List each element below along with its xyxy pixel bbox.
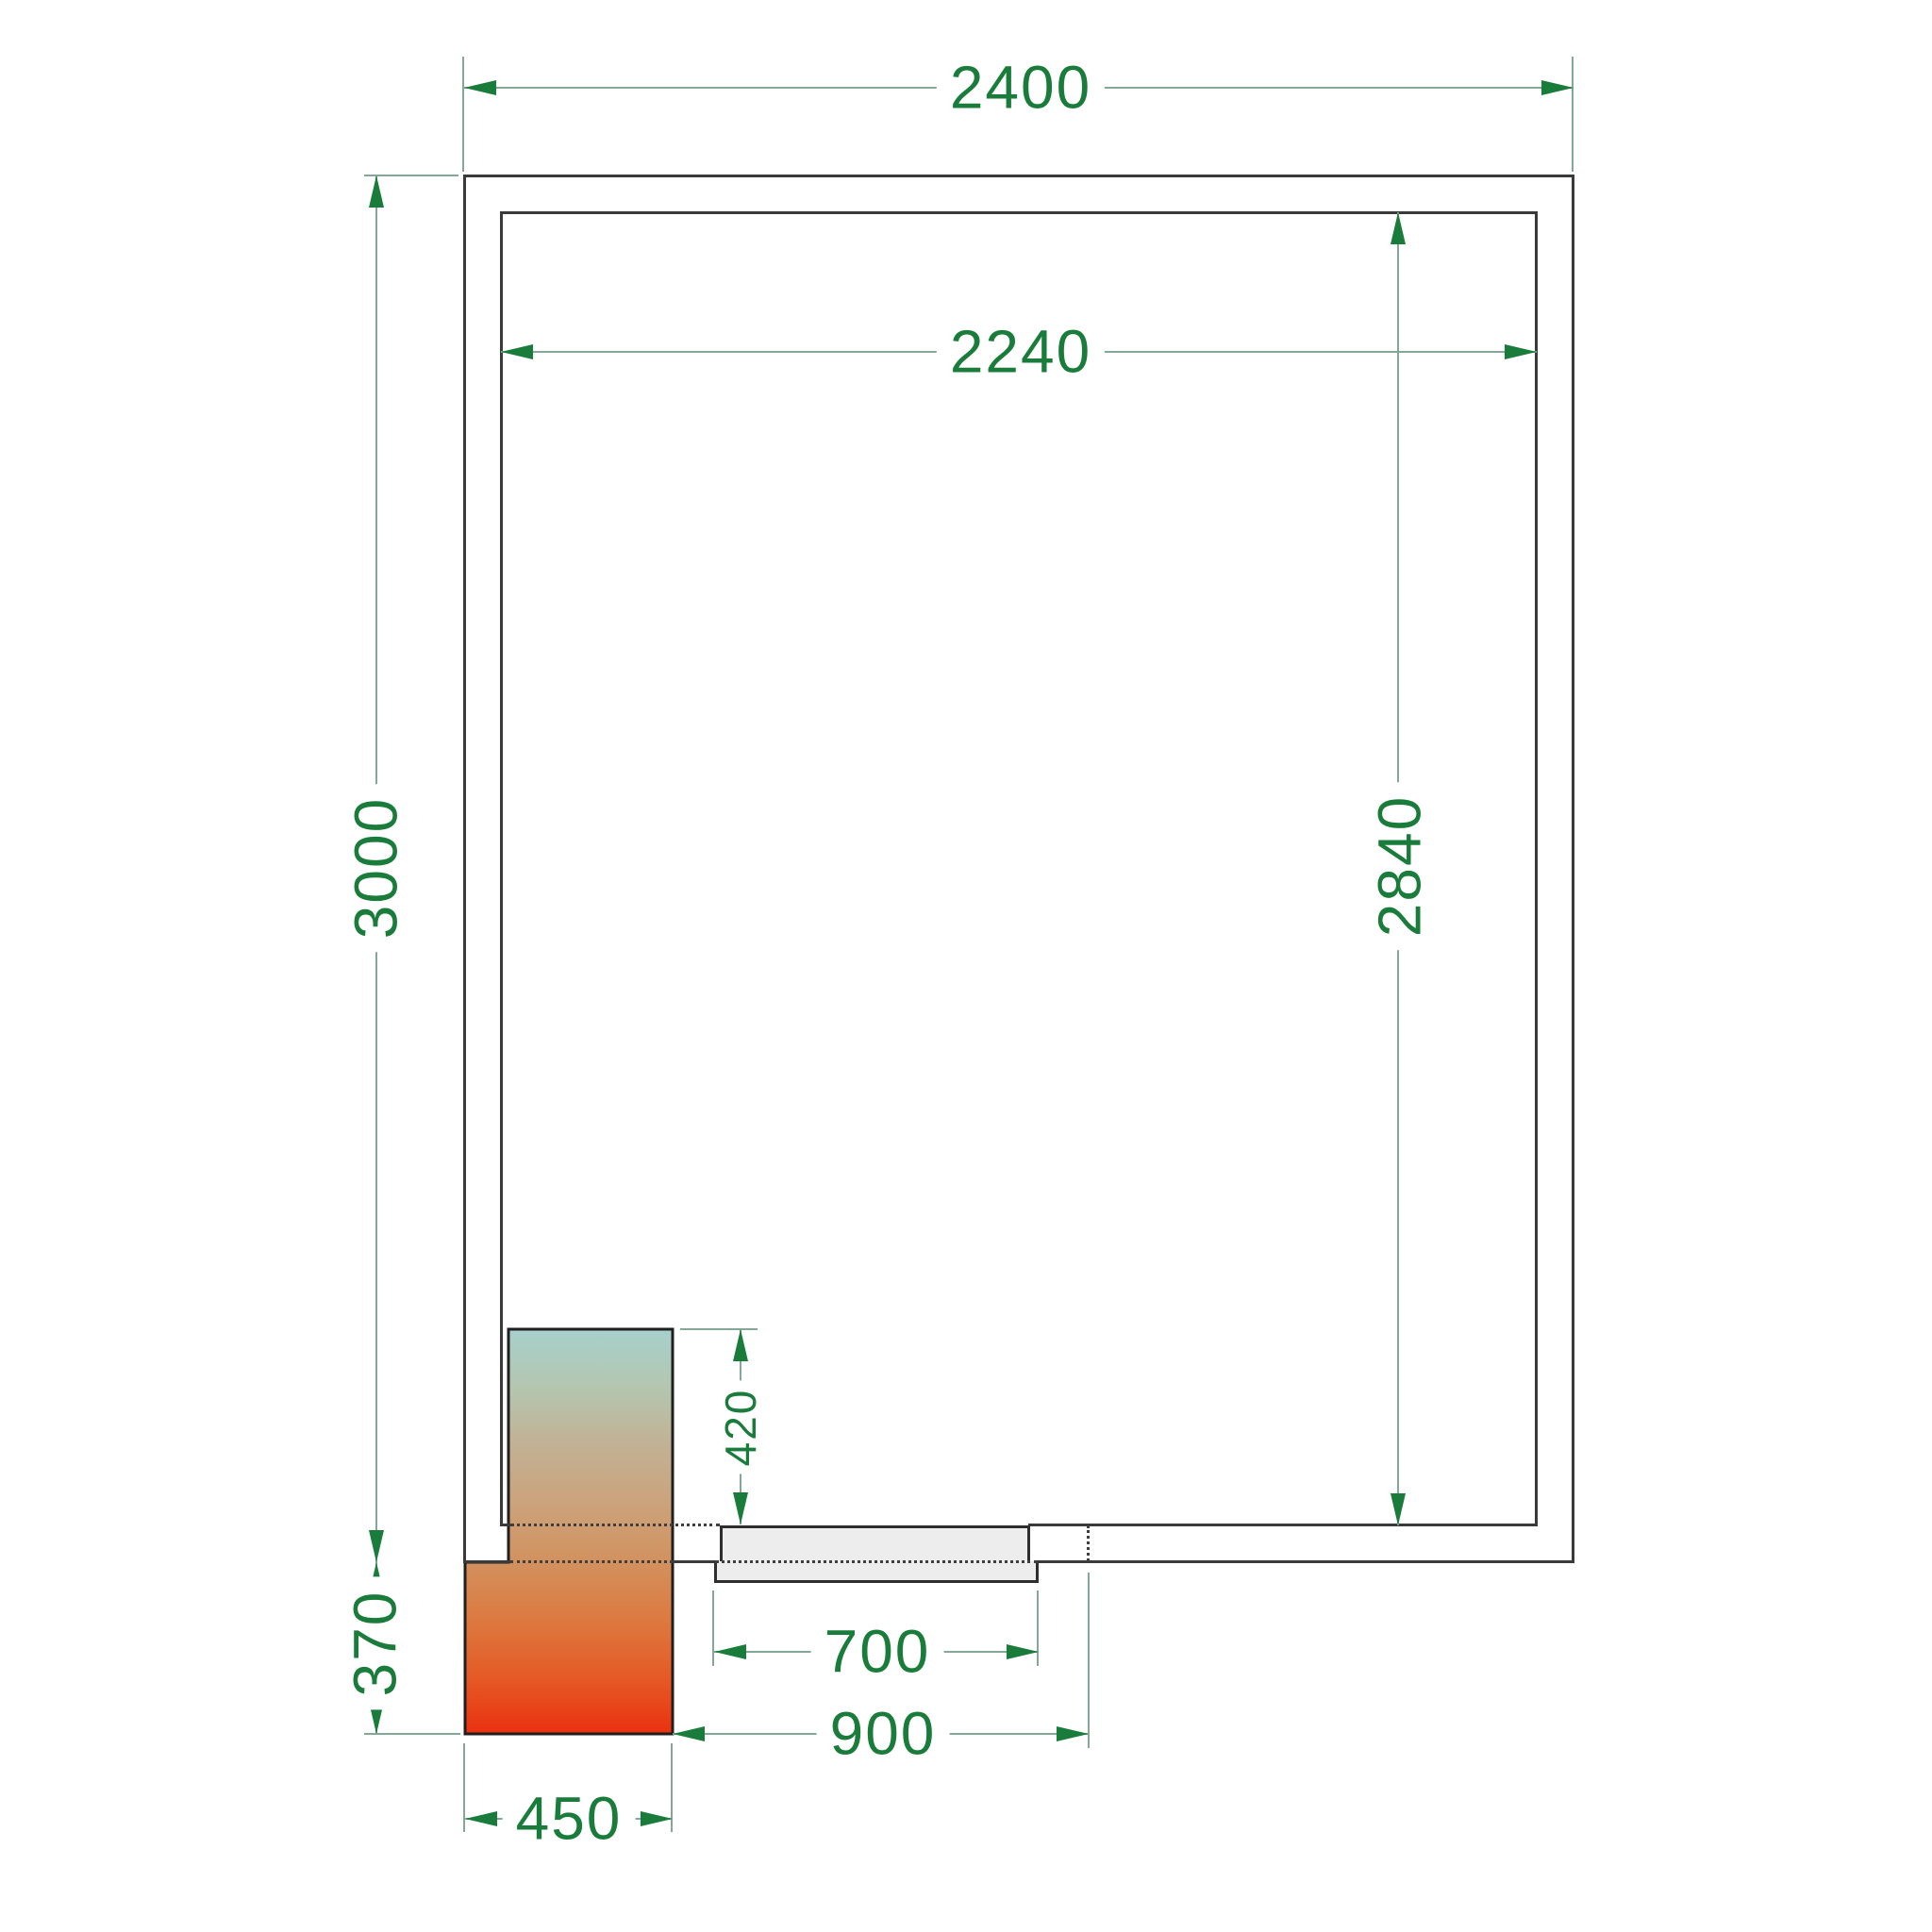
inner-wall-bottom-right-segment — [1028, 1524, 1537, 1526]
arrow-outer-depth-top — [369, 175, 384, 208]
cooling-unit-block — [463, 1327, 675, 1736]
door-leaf — [714, 1561, 1039, 1583]
inner-wall-top — [500, 211, 1538, 214]
door-clearance-width-dimension-label: 900 — [817, 1702, 950, 1765]
arrow-door-clearance-left — [673, 1726, 705, 1741]
outer-wall-top — [463, 175, 1574, 177]
arrow-unit-inside-depth-bottom — [733, 1492, 748, 1524]
door-leaf-width-dimension-label: 700 — [811, 1620, 944, 1683]
hidden-inner-wall-under-unit — [510, 1524, 720, 1526]
outer-wall-bottom-left-segment — [463, 1560, 510, 1563]
inner-wall-bottom-left-segment — [500, 1524, 510, 1526]
arrow-door-leaf-left — [714, 1644, 746, 1659]
hidden-outer-wall-under-door — [715, 1560, 1038, 1563]
outer-wall-right — [1572, 175, 1574, 1563]
arrow-door-leaf-right — [1007, 1644, 1039, 1659]
ext-line-door-clearance-right — [1088, 1573, 1090, 1748]
arrow-outer-width-right — [1541, 80, 1574, 95]
outer-depth-dimension-label: 3000 — [344, 784, 408, 952]
cooling-unit-outline — [465, 1329, 673, 1734]
arrow-door-clearance-right — [1057, 1726, 1089, 1741]
arrow-inner-width-left — [501, 344, 533, 359]
arrow-unit-width-right — [641, 1811, 673, 1826]
outer-wall-left — [463, 175, 466, 1563]
outer-wall-bottom-right-segment — [1037, 1560, 1574, 1563]
arrow-outer-depth-bottom — [369, 1530, 384, 1562]
inner-wall-left — [500, 211, 503, 1526]
outer-wall-bottom-mid-segment — [672, 1560, 715, 1563]
arrow-inner-width-right — [1505, 344, 1537, 359]
door-frame-in-wall — [720, 1525, 1030, 1561]
outer-width-dimension-label: 2400 — [937, 56, 1105, 119]
unit-outside-depth-dimension-label: 370 — [343, 1577, 407, 1710]
arrow-inner-depth-top — [1391, 212, 1406, 244]
arrow-inner-depth-bottom — [1391, 1493, 1406, 1525]
ext-line-outer-width-right — [1572, 57, 1574, 172]
ext-line-outer-width-left — [462, 57, 464, 172]
cold-room-floor-plan: 2400 2240 3000 2840 420 370 700 900 450 — [0, 0, 1932, 1932]
unit-inside-depth-dimension-label: 420 — [718, 1381, 763, 1474]
inner-width-dimension-label: 2240 — [937, 320, 1105, 383]
inner-depth-dimension-label: 2840 — [1368, 782, 1431, 950]
hidden-door-clearance-edge — [1087, 1525, 1090, 1561]
arrow-unit-width-left — [465, 1811, 497, 1826]
unit-outside-width-dimension-label: 450 — [503, 1787, 636, 1850]
hidden-outer-wall-under-unit — [510, 1560, 673, 1563]
arrow-outer-width-left — [464, 80, 496, 95]
inner-wall-right — [1535, 211, 1538, 1526]
arrow-unit-inside-depth-top — [733, 1329, 748, 1361]
